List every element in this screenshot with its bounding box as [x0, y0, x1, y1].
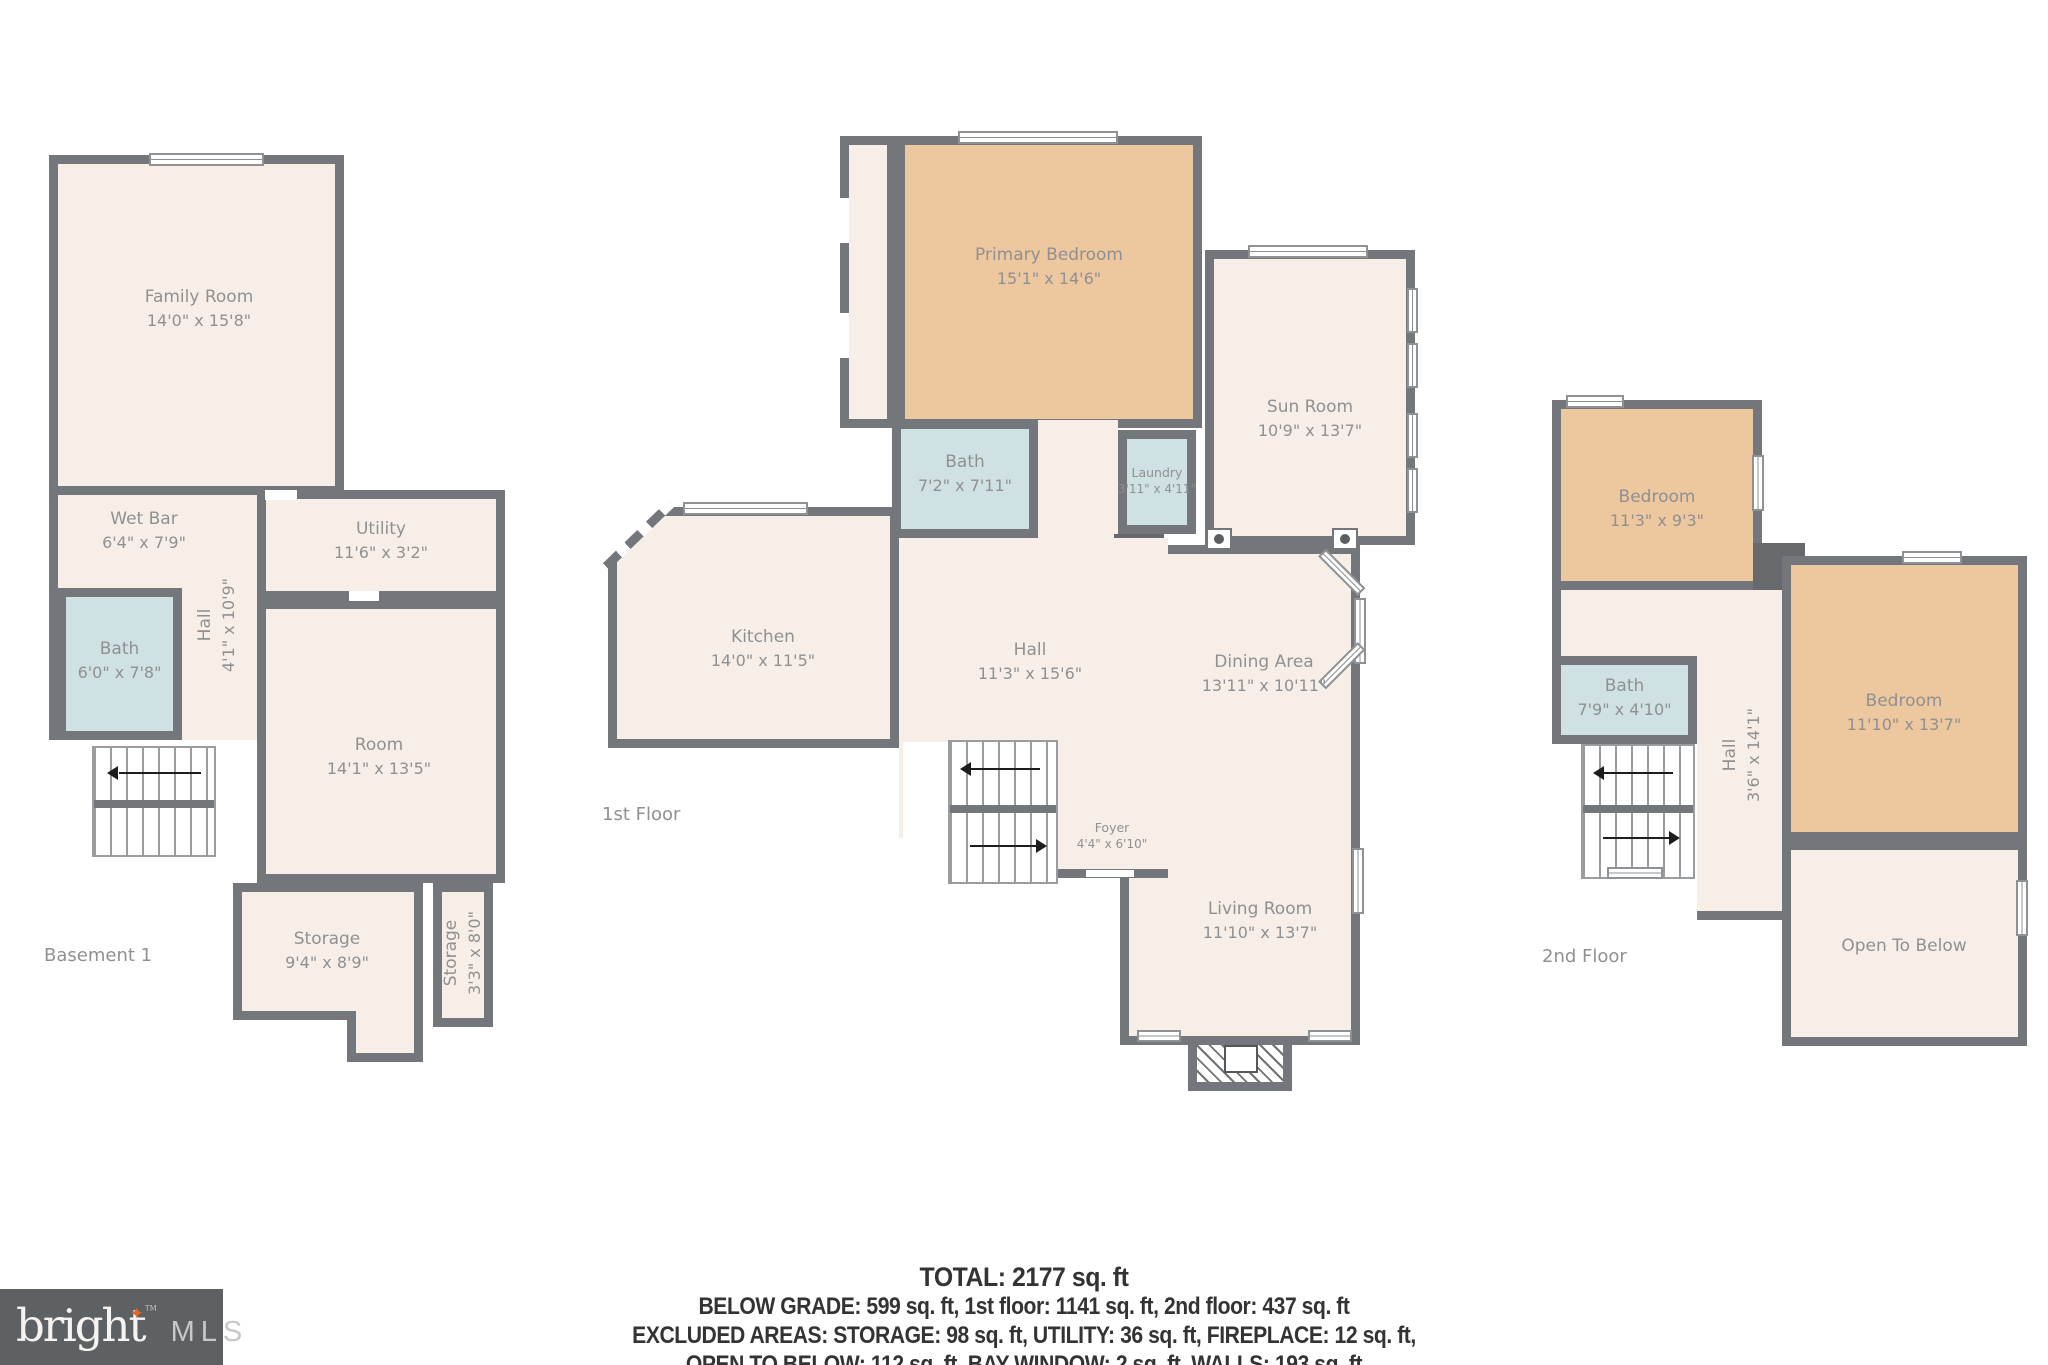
- room-label: Utility 11'6" x 3'2": [271, 517, 491, 565]
- room-name: Utility: [356, 519, 406, 539]
- stair-direction-arrow: [119, 772, 201, 774]
- second-floor-plan: Bedroom 11'3" x 9'3" Bath 7'9" x 4'10" H…: [1552, 400, 2042, 1065]
- room-name: Kitchen: [731, 627, 795, 647]
- room-dims: 7'2" x 7'11": [855, 474, 1075, 498]
- room-name: Primary Bedroom: [975, 245, 1123, 265]
- room-dims: 14'1" x 13'5": [269, 757, 489, 781]
- room-name: Bath: [945, 452, 985, 472]
- window: [1607, 867, 1663, 879]
- room-dims: 7'9" x 4'10": [1552, 698, 1697, 722]
- door-gap: [265, 490, 297, 500]
- room-label-vertical: Hall 4'1" x 10'9": [193, 545, 241, 705]
- first-floor-plan: Primary Bedroom 15'1" x 14'6" Sun Room 1…: [608, 128, 1450, 1108]
- room-name: Laundry: [1132, 465, 1183, 480]
- room-dims: 3'11" x 4'11": [1117, 481, 1197, 498]
- room-name: Bath: [1605, 676, 1645, 696]
- room-dims: 11'10" x 13'7": [1150, 921, 1370, 945]
- room-dims: 14'0" x 15'8": [89, 309, 309, 333]
- room-name: Room: [355, 735, 403, 755]
- room-dims: 10'9" x 13'7": [1200, 419, 1420, 443]
- window: [1566, 395, 1624, 408]
- stair-arrow-head: [1036, 839, 1047, 853]
- column-post: [1206, 528, 1232, 550]
- room-name: Sun Room: [1267, 397, 1353, 417]
- room-label: Storage 9'4" x 8'9": [237, 927, 417, 975]
- stair-landing-wall: [1583, 805, 1693, 813]
- room-dims: 11'10" x 13'7": [1794, 713, 2014, 737]
- stair-arrow-head: [1593, 766, 1604, 780]
- room-name: Dining Area: [1214, 652, 1313, 672]
- room-label-vertical: Hall 3'6" x 14'1": [1718, 675, 1766, 835]
- room-dims: 14'0" x 11'5": [653, 649, 873, 673]
- window: [1308, 1030, 1352, 1042]
- window: [149, 153, 264, 166]
- room-label: Family Room 14'0" x 15'8": [89, 285, 309, 333]
- room-name: Storage: [294, 929, 361, 949]
- room-dims: 11'3" x 15'6": [920, 662, 1140, 686]
- room-label: Room 14'1" x 13'5": [269, 733, 489, 781]
- room-dims: 3'3" x 8'0": [463, 873, 487, 1033]
- floor-label-basement: Basement 1: [44, 945, 152, 966]
- room-name: Family Room: [145, 287, 254, 307]
- window: [2016, 880, 2028, 936]
- floorplan-canvas: Family Room 14'0" x 15'8" Wet Bar 6'4" x…: [0, 0, 2048, 1365]
- stair-landing-wall: [94, 800, 214, 808]
- room-dims: 11'6" x 3'2": [271, 541, 491, 565]
- room-dims: 9'4" x 8'9": [237, 951, 417, 975]
- room-name: Bath: [100, 639, 140, 659]
- window-gap: [838, 198, 849, 243]
- room-label: Foyer 4'4" x 6'10": [1062, 819, 1162, 853]
- logo-trademark: TM: [145, 1304, 157, 1313]
- column-post: [1332, 528, 1358, 550]
- room-label: Sun Room 10'9" x 13'7": [1200, 395, 1420, 443]
- room-name: Living Room: [1208, 899, 1312, 919]
- window: [1407, 468, 1418, 513]
- room-label: Kitchen 14'0" x 11'5": [653, 625, 873, 673]
- room-label: Bath 7'9" x 4'10": [1552, 674, 1697, 722]
- room-label-vertical: Storage 3'3" x 8'0": [439, 873, 487, 1033]
- stairwell-void: [58, 748, 94, 855]
- firebox: [1224, 1045, 1258, 1073]
- room-label: Living Room 11'10" x 13'7": [1150, 897, 1370, 945]
- room-label: Hall 11'3" x 15'6": [920, 638, 1140, 686]
- room-dims: 6'0" x 7'8": [57, 661, 182, 685]
- room-label: Bedroom 11'10" x 13'7": [1794, 689, 2014, 737]
- room-name: Wet Bar: [110, 509, 177, 529]
- bright-mls-logo: bright ✦ TM MLS: [0, 1289, 223, 1365]
- room-name: Hall: [1014, 640, 1047, 660]
- area-summary: TOTAL: 2177 sq. ft BELOW GRADE: 599 sq. …: [0, 1263, 2048, 1365]
- stair-direction-arrow: [970, 845, 1040, 847]
- room-name: Foyer: [1095, 820, 1130, 835]
- window: [1407, 343, 1418, 388]
- foyer-area: [1056, 742, 1168, 878]
- room-name: Open To Below: [1841, 936, 1966, 956]
- stair-arrow-head: [960, 762, 971, 776]
- window: [1407, 288, 1418, 333]
- hall-end-wall: [1697, 911, 1787, 920]
- room-name: Bedroom: [1866, 691, 1943, 711]
- floor-label-second: 2nd Floor: [1542, 946, 1627, 967]
- room-name: Hall: [195, 609, 215, 642]
- logo-brand-text: bright: [16, 1303, 145, 1348]
- storage-bumpout: [347, 1011, 423, 1062]
- room-dims: 4'4" x 6'10": [1062, 836, 1162, 853]
- summary-line-excluded: EXCLUDED AREAS: STORAGE: 98 sq. ft, UTIL…: [123, 1321, 1925, 1350]
- room-dims: 3'6" x 14'1": [1742, 675, 1766, 835]
- window: [1137, 1030, 1181, 1042]
- room-label: Bath 7'2" x 7'11": [855, 450, 1075, 498]
- room-dims: 11'3" x 9'3": [1547, 509, 1767, 533]
- window-gap: [838, 313, 849, 358]
- entry-strip: [840, 136, 896, 428]
- post-dot: [1340, 534, 1350, 544]
- summary-line-grades: BELOW GRADE: 599 sq. ft, 1st floor: 1141…: [123, 1292, 1925, 1321]
- room-label: Bedroom 11'3" x 9'3": [1547, 485, 1767, 533]
- logo-mls-text: MLS: [171, 1316, 249, 1349]
- stair-landing-wall: [950, 805, 1056, 813]
- stair-direction-arrow: [970, 768, 1040, 770]
- room-label: Laundry 3'11" x 4'11": [1117, 464, 1197, 498]
- room-dims: 15'1" x 14'6": [939, 267, 1159, 291]
- stair-arrow-head: [107, 766, 118, 780]
- summary-total: TOTAL: 2177 sq. ft: [82, 1263, 1966, 1292]
- stairwell-void: [903, 742, 950, 882]
- window: [1248, 245, 1368, 258]
- room-label: Primary Bedroom 15'1" x 14'6": [939, 243, 1159, 291]
- summary-line-excluded-2: OPEN TO BELOW: 112 sq. ft, BAY WINDOW: 2…: [123, 1350, 1925, 1365]
- window: [683, 502, 808, 515]
- room-label: Open To Below: [1794, 934, 2014, 958]
- post-dot: [1214, 534, 1224, 544]
- room-label: Dining Area 13'11" x 10'11": [1154, 650, 1374, 698]
- logo-star-icon: ✦: [130, 1304, 144, 1324]
- basement-plan: Family Room 14'0" x 15'8" Wet Bar 6'4" x…: [49, 155, 511, 1095]
- window: [958, 131, 1118, 144]
- room-name: Hall: [1720, 739, 1740, 772]
- stair-direction-arrow: [1603, 837, 1673, 839]
- room-name: Storage: [441, 920, 461, 987]
- floor-label-first: 1st Floor: [602, 804, 680, 825]
- entry-door-gap: [1086, 870, 1134, 877]
- stair-arrow-head: [1669, 831, 1680, 845]
- stair-direction-arrow: [1603, 772, 1673, 774]
- room-label: Bath 6'0" x 7'8": [57, 637, 182, 685]
- window: [1902, 551, 1962, 564]
- room-dims: 4'1" x 10'9": [217, 545, 241, 705]
- room-name: Bedroom: [1619, 487, 1696, 507]
- door-gap: [349, 591, 379, 601]
- room-dims: 13'11" x 10'11": [1154, 674, 1374, 698]
